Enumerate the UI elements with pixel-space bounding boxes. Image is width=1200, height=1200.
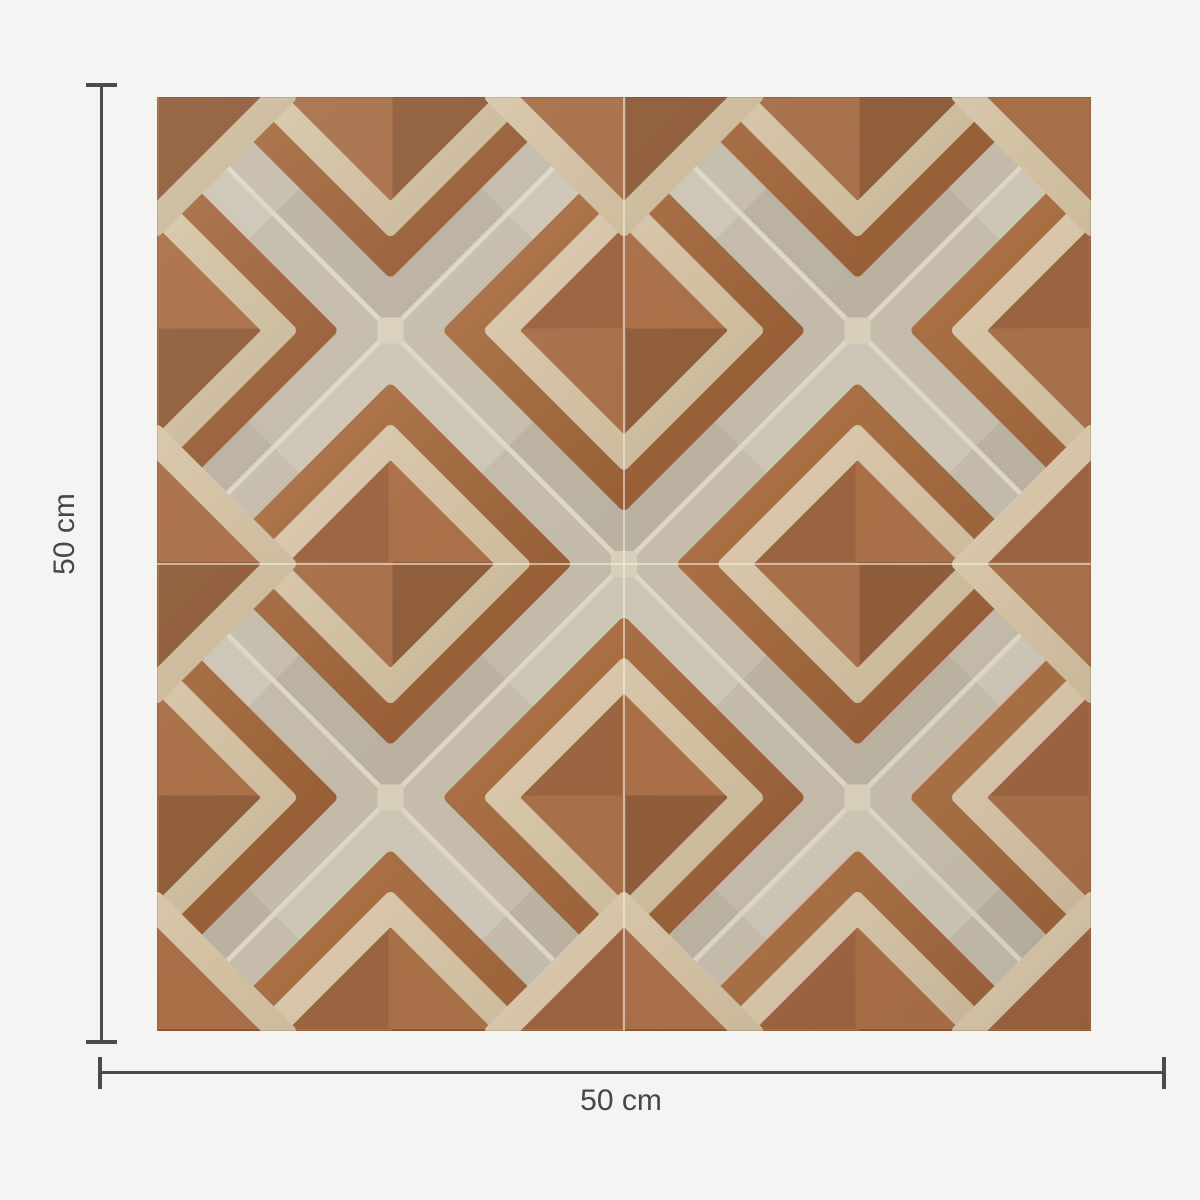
dimension-line-horizontal	[100, 1071, 1164, 1074]
height-dimension-label: 50 cm	[48, 493, 82, 575]
dimension-cap-top	[86, 83, 117, 87]
dimension-cap-bottom	[86, 1040, 117, 1044]
dimension-cap-right	[1162, 1057, 1166, 1089]
dimension-line-vertical	[100, 84, 103, 1043]
tile-pattern-svg	[157, 97, 1091, 1031]
dimension-cap-left	[98, 1057, 102, 1089]
tile-photo	[157, 97, 1091, 1031]
width-dimension-label: 50 cm	[580, 1084, 662, 1118]
product-dimension-illustration: 50 cm 50 cm	[0, 0, 1200, 1200]
